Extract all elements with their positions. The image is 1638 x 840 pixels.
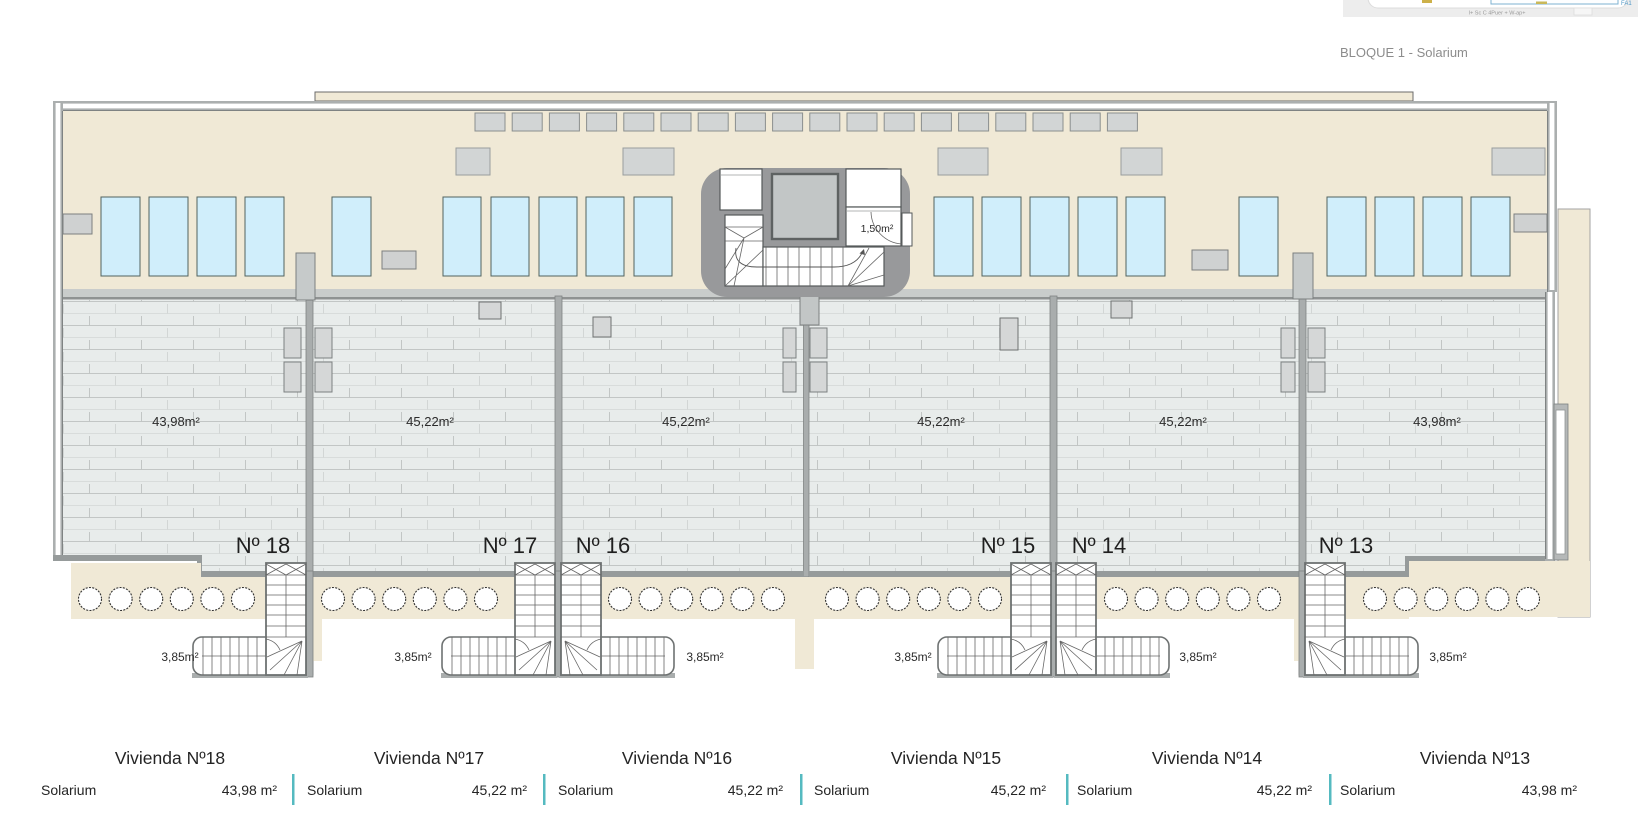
svg-text:43,98 m²: 43,98 m² [222, 782, 278, 798]
svg-text:45,22m²: 45,22m² [917, 414, 965, 429]
svg-text:Vivienda Nº17: Vivienda Nº17 [374, 748, 484, 768]
svg-text:3,85m²: 3,85m² [1429, 650, 1466, 664]
svg-text:45,22 m²: 45,22 m² [472, 782, 528, 798]
svg-text:Vivienda Nº15: Vivienda Nº15 [891, 748, 1001, 768]
svg-text:Solarium: Solarium [814, 782, 869, 798]
svg-text:1,50m²: 1,50m² [861, 223, 894, 235]
svg-text:Nº 16: Nº 16 [576, 533, 631, 558]
svg-text:Solarium: Solarium [558, 782, 613, 798]
svg-text:Nº 18: Nº 18 [236, 533, 291, 558]
svg-text:43,98m²: 43,98m² [1413, 414, 1461, 429]
svg-text:3,85m²: 3,85m² [1179, 650, 1216, 664]
svg-text:45,22 m²: 45,22 m² [991, 782, 1047, 798]
svg-text:3,85m²: 3,85m² [686, 650, 723, 664]
svg-text:43,98 m²: 43,98 m² [1522, 782, 1578, 798]
svg-text:Nº 17: Nº 17 [483, 533, 538, 558]
svg-text:Nº 14: Nº 14 [1072, 533, 1127, 558]
svg-text:BLOQUE 1 - Solarium: BLOQUE 1 - Solarium [1340, 45, 1468, 60]
svg-text:Solarium: Solarium [307, 782, 362, 798]
svg-text:FA1: FA1 [1621, 1, 1632, 7]
svg-text:45,22m²: 45,22m² [662, 414, 710, 429]
svg-text:Nº 13: Nº 13 [1319, 533, 1374, 558]
svg-text:I+ Sc C 4Puer + W-ap+: I+ Sc C 4Puer + W-ap+ [1469, 11, 1526, 17]
svg-text:Vivienda Nº18: Vivienda Nº18 [115, 748, 225, 768]
svg-text:3,85m²: 3,85m² [161, 650, 198, 664]
svg-text:45,22m²: 45,22m² [406, 414, 454, 429]
svg-text:3,85m²: 3,85m² [894, 650, 931, 664]
svg-text:Nº 15: Nº 15 [981, 533, 1036, 558]
svg-text:45,22 m²: 45,22 m² [1257, 782, 1313, 798]
svg-text:45,22 m²: 45,22 m² [728, 782, 784, 798]
svg-text:Solarium: Solarium [1077, 782, 1132, 798]
svg-text:43,98m²: 43,98m² [152, 414, 200, 429]
svg-text:Vivienda Nº13: Vivienda Nº13 [1420, 748, 1530, 768]
svg-text:Solarium: Solarium [1340, 782, 1395, 798]
svg-text:Vivienda Nº16: Vivienda Nº16 [622, 748, 732, 768]
svg-text:3,85m²: 3,85m² [394, 650, 431, 664]
svg-text:Solarium: Solarium [41, 782, 96, 798]
svg-text:45,22m²: 45,22m² [1159, 414, 1207, 429]
svg-text:Vivienda Nº14: Vivienda Nº14 [1152, 748, 1262, 768]
